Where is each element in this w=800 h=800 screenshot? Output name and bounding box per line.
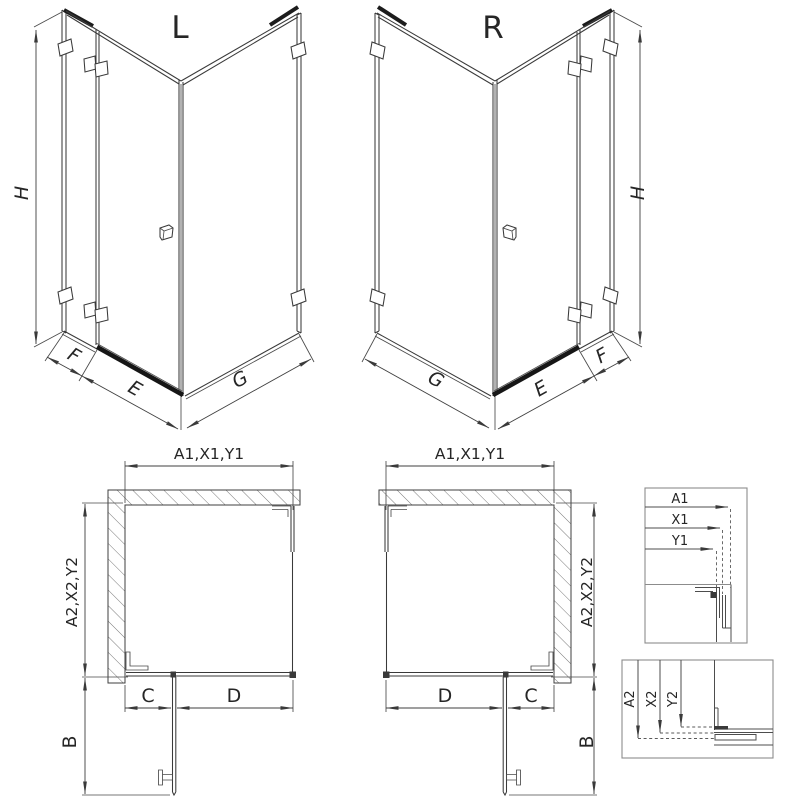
detail-width-y1: Y1 <box>671 534 688 549</box>
dim-door-plan-right: D <box>438 685 453 707</box>
detail-width-x1: X1 <box>671 513 688 528</box>
plan-right-walls <box>379 490 571 683</box>
dim-fixed-right: F <box>592 343 613 368</box>
variant-label-left: L <box>171 10 189 46</box>
detail-box-depth <box>622 660 773 758</box>
detail-depth-y2: Y2 <box>666 691 681 708</box>
detail-depth-a2: A2 <box>623 690 638 707</box>
dim-fixed-plan-left: C <box>141 685 154 707</box>
dim-swing-plan-right: B <box>576 735 598 748</box>
dim-depth-plan-right: A2,X2,Y2 <box>578 557 596 627</box>
dim-door-left: E <box>124 376 145 401</box>
drawing-canvas: L R H H F E G F E G A1,X1,Y1 A1,X1,Y1 A2… <box>0 0 800 800</box>
iso-right-view <box>362 7 642 430</box>
plan-left-walls <box>108 490 300 683</box>
dim-width-plan-left: A1,X1,Y1 <box>174 445 244 463</box>
dim-height-left: H <box>11 186 33 200</box>
dim-depth-plan-left: A2,X2,Y2 <box>63 557 81 627</box>
dim-height-right: H <box>627 186 649 200</box>
variant-label-right: R <box>482 10 504 46</box>
dim-swing-plan-left: B <box>59 735 81 748</box>
dim-fixed-left: F <box>64 344 85 369</box>
dim-fixed-plan-right: C <box>524 685 537 707</box>
detail-box-width <box>645 488 747 643</box>
dim-door-plan-left: D <box>227 685 242 707</box>
dim-door-right: E <box>530 376 551 401</box>
dim-width-plan-right: A1,X1,Y1 <box>435 445 505 463</box>
iso-left-view <box>34 7 314 430</box>
shower-enclosure-technical-drawing: L R H H F E G F E G A1,X1,Y1 A1,X1,Y1 A2… <box>0 0 800 800</box>
detail-width-a1: A1 <box>671 492 688 507</box>
detail-depth-x2: X2 <box>645 690 660 707</box>
